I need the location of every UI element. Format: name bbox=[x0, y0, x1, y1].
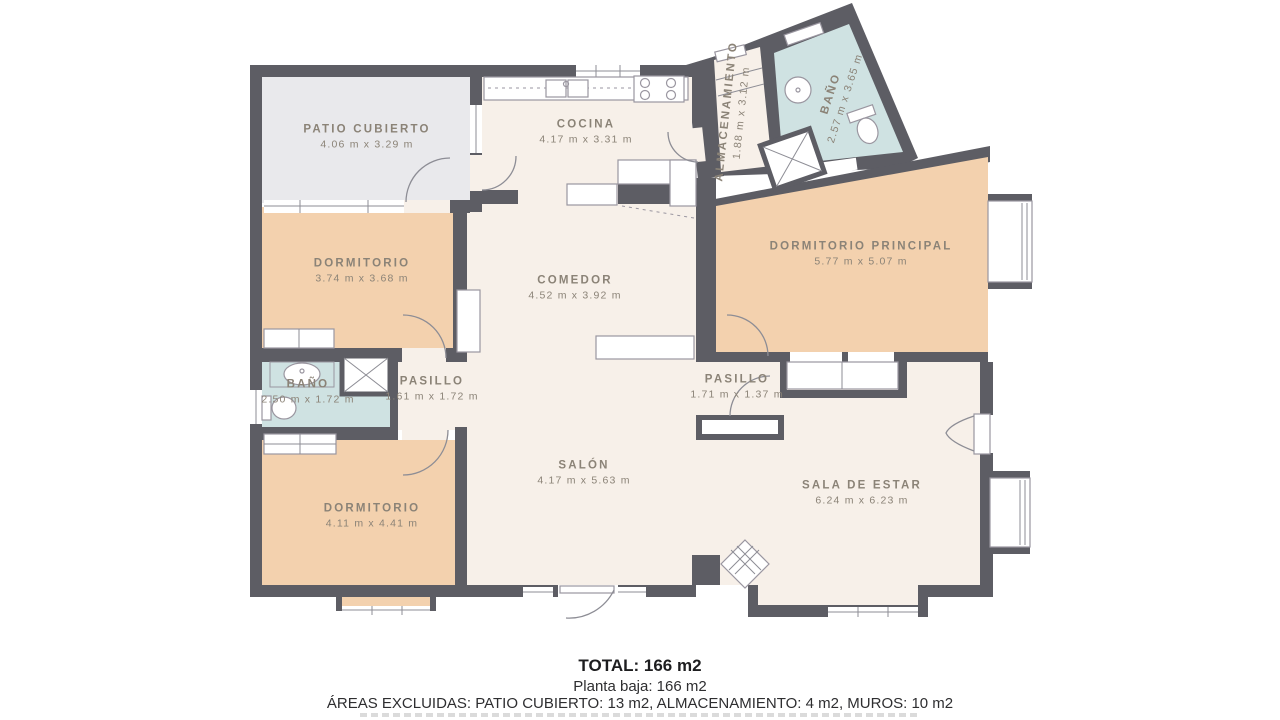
room-fill-dorm2 bbox=[262, 440, 455, 585]
watermark-line bbox=[360, 713, 920, 717]
floor-area-text: Planta baja: 166 m2 bbox=[0, 678, 1280, 695]
kitchen-sink bbox=[546, 80, 566, 97]
room-fill-pasillo1 bbox=[398, 360, 468, 430]
floorplan-canvas bbox=[0, 0, 1280, 720]
room-fill-dorm-principal bbox=[716, 157, 988, 352]
sideboard bbox=[596, 336, 694, 359]
toilet-icon bbox=[272, 397, 296, 419]
excluded-areas-text: ÁREAS EXCLUIDAS: PATIO CUBIERTO: 13 m2, … bbox=[0, 695, 1280, 712]
sink-icon bbox=[284, 363, 320, 385]
room-fill-comedor-salon bbox=[466, 200, 696, 585]
room-fill-dorm1 bbox=[262, 207, 453, 348]
kitchen-island bbox=[567, 184, 617, 205]
room-fill-patio bbox=[262, 77, 470, 203]
floorplan-page: PATIO CUBIERTO 4.06 m x 3.29 m COCINA 4.… bbox=[0, 0, 1280, 720]
room-fills bbox=[262, 24, 988, 608]
total-area-text: TOTAL: 166 m2 bbox=[0, 656, 1280, 676]
sink-icon-2 bbox=[785, 77, 811, 103]
bump-fill bbox=[748, 585, 928, 607]
